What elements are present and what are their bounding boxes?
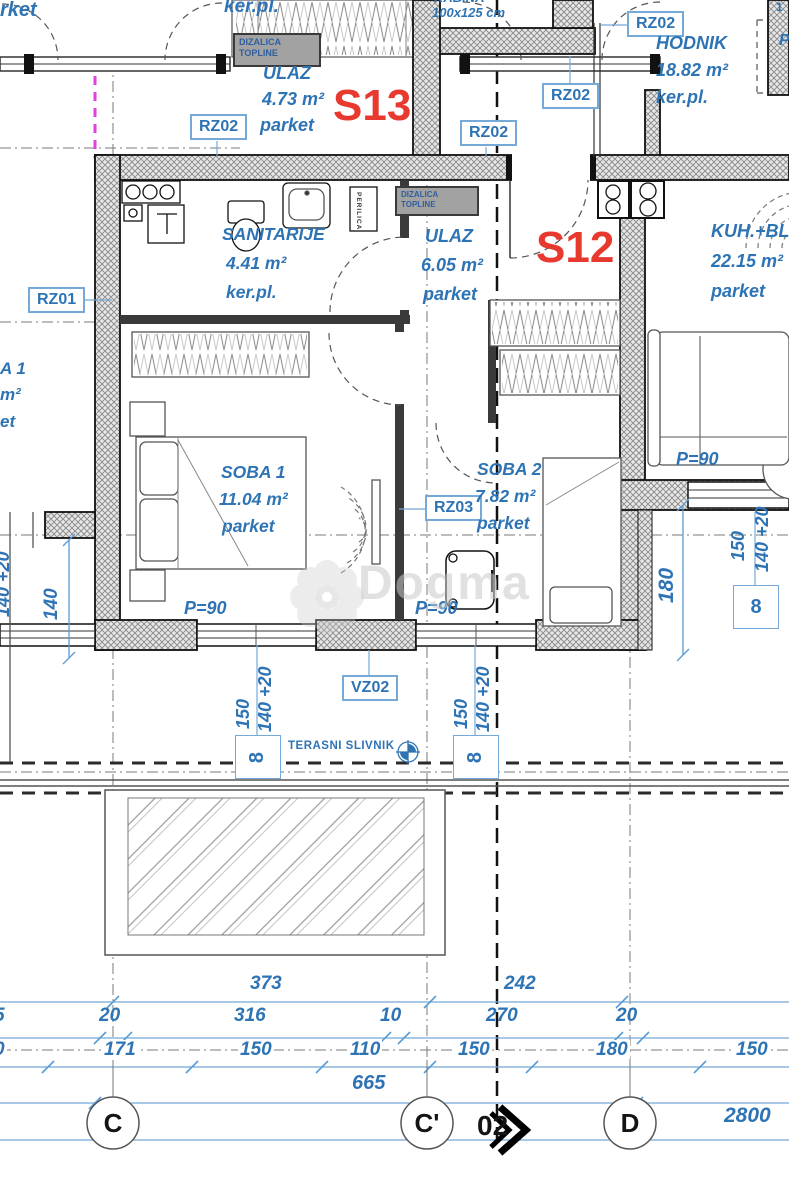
dim-373: 373	[250, 974, 282, 993]
heat-pump-line1: DIZALICA	[401, 190, 473, 200]
dim-242: 242	[504, 974, 536, 993]
room-hodnik-area: 18.82 m²	[656, 61, 728, 79]
dim-150b: 150	[456, 1040, 492, 1059]
room-soba1-area: 11.04 m²	[219, 491, 288, 509]
partial-p-right: P	[779, 33, 789, 49]
dim-2800: 2800	[724, 1105, 771, 1126]
room-ulaz-s13-area: 4.73 m²	[262, 90, 324, 108]
partial-left-m2: m²	[0, 386, 21, 403]
room-kabina-size: 100x125 cm	[432, 6, 505, 19]
dim-140-20-terr-left: 140 +20	[256, 666, 274, 732]
room-hodnik-floor: ker.pl.	[656, 88, 708, 106]
dim-270: 270	[486, 1006, 518, 1025]
dim-150a: 150	[238, 1040, 274, 1059]
room-soba2-area: 7.82 m²	[475, 488, 535, 506]
dim-10: 10	[380, 1006, 401, 1025]
washer-label: PERILICA	[355, 192, 362, 230]
tag-rz02-1: RZ02	[190, 114, 247, 140]
watermark-text: Dogma	[358, 556, 531, 611]
room-ulaz-s12-name: ULAZ	[425, 227, 473, 245]
dim-140-left: 140	[42, 588, 61, 620]
dim-150c: 150	[734, 1040, 770, 1059]
room-sanitarije-area: 4.41 m²	[226, 255, 286, 273]
dim-171: 171	[102, 1040, 138, 1059]
unit-label-s13: S13	[333, 84, 411, 128]
door-width-p90-1: P=90	[184, 599, 227, 617]
dim-140-20-right: 140 +20	[753, 506, 771, 572]
heat-pump-line1: DIZALICA	[239, 37, 315, 48]
heat-pump-box-1: DIZALICA TOPLINE	[233, 33, 321, 67]
room-kuh-floor: parket	[711, 282, 765, 300]
dim-150-terr-right: 150	[452, 699, 470, 729]
floor-plan-canvas: rket ker.pl. 1 P DIZALICA TOPLINE DIZALI…	[0, 0, 789, 1200]
partial-left-soba: A 1	[0, 360, 26, 377]
terrace-drain-label: TERASNI SLIVNIK	[288, 741, 395, 753]
shaft-box-terr-left: 8	[235, 735, 281, 779]
dim-180: 180	[656, 568, 677, 603]
room-kuh-name: KUH.+BL	[711, 222, 789, 240]
grid-bubble-d: D	[614, 1110, 646, 1136]
heat-pump-line2: TOPLINE	[401, 200, 473, 210]
room-ulaz-s12-floor: parket	[423, 285, 477, 303]
tag-rz02-3: RZ02	[542, 83, 599, 109]
door-width-p90-3: P=90	[676, 450, 719, 468]
room-kuh-area: 22.15 m²	[711, 252, 783, 270]
shaft-box-right: 8	[733, 585, 779, 629]
tag-vz02: VZ02	[342, 675, 398, 701]
dim-316: 316	[234, 1006, 266, 1025]
partial-one-top-right: 1	[776, 1, 783, 13]
dim-180-row: 180	[594, 1040, 630, 1059]
room-soba1-floor: parket	[222, 518, 275, 536]
shaft-box-terr-right: 8	[453, 735, 499, 779]
room-hodnik-name: HODNIK	[656, 34, 727, 52]
tag-rz03: RZ03	[425, 495, 482, 521]
dim-665: 665	[352, 1073, 385, 1093]
dim-20a: 20	[99, 1006, 120, 1025]
room-soba2-floor: parket	[477, 515, 530, 533]
shaft-number: 8	[750, 596, 761, 619]
shaft-number: 8	[465, 751, 488, 762]
heat-pump-box-2: DIZALICA TOPLINE	[395, 186, 479, 216]
dim-140-20-terr-right: 140 +20	[474, 666, 492, 732]
dim-20b: 20	[616, 1006, 637, 1025]
dim-partial-0: 0	[0, 1040, 7, 1059]
section-mark-02: 02	[477, 1112, 508, 1140]
dim-140-20-left: 140 +20	[0, 551, 12, 617]
dim-partial-5: 5	[0, 1006, 5, 1025]
dim-110: 110	[348, 1040, 382, 1059]
dim-150-terr-left: 150	[234, 699, 252, 729]
room-sanitarije-name: SANITARIJE	[222, 226, 325, 244]
room-ulaz-s13-name: ULAZ	[263, 64, 311, 82]
room-sanitarije-floor: ker.pl.	[226, 284, 277, 302]
partial-parket-top-left: rket	[0, 0, 37, 20]
labels-layer: rket ker.pl. 1 P DIZALICA TOPLINE DIZALI…	[0, 0, 789, 1200]
heat-pump-line2: TOPLINE	[239, 48, 315, 59]
grid-bubble-c: C	[97, 1110, 129, 1136]
unit-label-s12: S12	[536, 226, 614, 270]
room-soba1-name: SOBA 1	[221, 464, 286, 482]
partial-kerpl-top: ker.pl.	[224, 0, 279, 16]
tag-rz01: RZ01	[28, 287, 85, 313]
room-kabina-name: KABINA	[434, 0, 485, 4]
grid-bubble-c-prime: C'	[409, 1110, 445, 1136]
dim-150-right: 150	[729, 531, 747, 561]
room-ulaz-s13-floor: parket	[260, 116, 314, 134]
tag-rz02-4: RZ02	[460, 120, 517, 146]
partial-left-parket: et	[0, 413, 15, 430]
room-ulaz-s12-area: 6.05 m²	[421, 256, 483, 274]
shaft-number: 8	[247, 751, 270, 762]
room-soba2-name: SOBA 2	[477, 461, 542, 479]
